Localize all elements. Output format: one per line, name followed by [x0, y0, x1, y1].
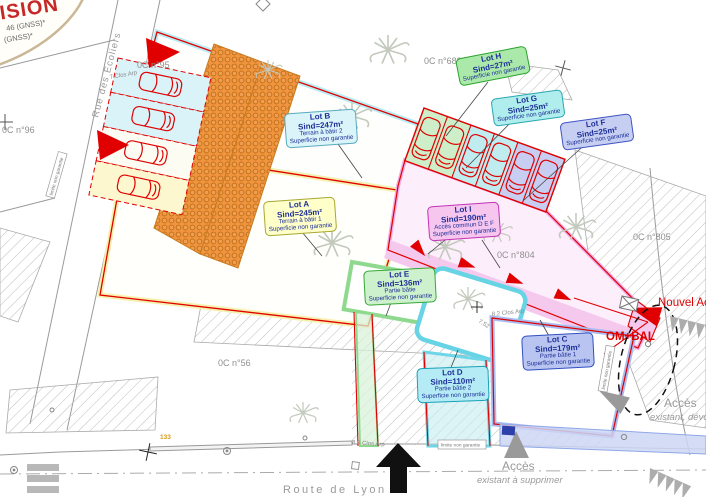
nouvel-acces-label: Nouvel Ac [658, 297, 706, 309]
roadside-wall [150, 441, 352, 451]
parcel-number-804: 0C n°804 [497, 250, 535, 260]
survey-square-icon [351, 462, 359, 470]
pole-icon [303, 436, 307, 440]
sawtooth-icon [644, 468, 691, 497]
site-plan-canvas: 0C n°95 0C n°96 0C n°688 0C n°804 0C n°8… [0, 0, 706, 497]
division-plan: 0C n°95 0C n°96 0C n°688 0C n°804 0C n°8… [0, 0, 706, 497]
tree-icon [370, 35, 409, 64]
parcel-number-95: 0C n°95 [137, 60, 170, 70]
parcel-line [0, 198, 55, 212]
om-bal-label: OM+BAL [606, 331, 655, 343]
lot-note: Superficie non garantie [421, 392, 485, 401]
lot-label-I: Lot I Sind=190m² Accès commun D E F Supe… [427, 202, 501, 242]
limite-label: limite non garantie [441, 443, 481, 449]
acces-devoye-label-2: existant, dévoyé [650, 412, 706, 423]
building-west [0, 228, 50, 322]
acces-devoye-label-1: Accès [664, 396, 697, 410]
street-label-clos-arp-86: 8.6 Clos Arp [352, 440, 386, 448]
lot-note: Superficie non garantie [526, 358, 590, 368]
tree-icon [290, 402, 318, 423]
bal-square-icon [502, 426, 516, 436]
street-label-route-de-lyon: Route de Lyon [283, 484, 387, 496]
parcel-number-96: 0C n°96 [2, 125, 35, 135]
lot-label-B: Lot B Sind=247m² Terrain à bâtir 2 Super… [284, 109, 358, 149]
parcel-number-56: 0C n°56 [218, 358, 251, 368]
lot-label-D: Lot D Sind=110m² Partie bâtie 2 Superfic… [416, 366, 489, 403]
survey-cross-icon [137, 441, 158, 462]
lot-label-C: Lot C Sind=179m² Partie bâtie 1 Superfic… [521, 332, 594, 370]
crosswalk-stripe [27, 464, 59, 471]
crosswalk-stripe [27, 486, 59, 493]
lot-note: Superficie non garantie [368, 293, 432, 303]
lot-label-A: Lot A Sind=245m² Terrain à bâtir 1 Super… [263, 197, 337, 237]
crosswalk-stripe [27, 475, 59, 482]
building-southwest [6, 377, 158, 433]
point-number-133: 133 [160, 434, 171, 441]
road-centerline [0, 470, 706, 474]
lot-label-E: Lot E Sind=136m² Partie bâtie Superficie… [363, 267, 436, 305]
acces-supprimer-label-2: existant à supprimer [477, 475, 563, 486]
parcel-number-805: 0C n°805 [633, 232, 671, 242]
crosswalk [27, 464, 59, 493]
acces-supprimer-label-1: Accès [502, 459, 535, 473]
survey-diamond-icon [256, 0, 270, 11]
surveyor-stamp: ISION 46 (GNSS)* (GNSS)* [0, 0, 108, 101]
